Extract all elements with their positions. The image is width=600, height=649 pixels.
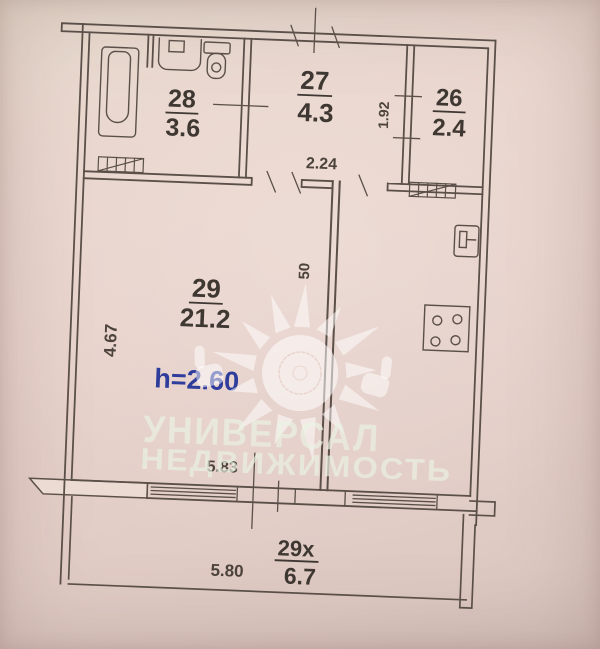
sun-disc — [261, 334, 340, 413]
washbasin-icon — [158, 38, 201, 71]
outer-wall-left — [60, 24, 89, 584]
toilet-tank-icon — [204, 42, 230, 54]
floor-plan-photo: 28 3.6 27 4.3 26 2.4 29 21.2 h=2.60 29x … — [0, 0, 600, 649]
dim-2-24: 2.24 — [306, 155, 338, 173]
room-28-area: 3.6 — [165, 113, 201, 142]
window-1 — [151, 487, 235, 498]
stove-icon — [423, 305, 470, 352]
door-dash-26 — [394, 96, 422, 139]
bathtub-inner — [106, 51, 131, 123]
wall-28-27 — [239, 39, 252, 178]
room-29-number: 29 — [191, 273, 221, 304]
window-2 — [353, 495, 435, 505]
balcony-left-wall — [69, 497, 72, 579]
room-29x-area: 6.7 — [283, 563, 316, 590]
floor-plan-svg: 28 3.6 27 4.3 26 2.4 29 21.2 h=2.60 29x … — [0, 0, 600, 649]
toilet-drain — [212, 63, 221, 72]
bottom-dim-tick-short — [278, 481, 279, 511]
outer-wall-top — [62, 23, 496, 48]
bottom-openings — [147, 483, 437, 510]
room-26-number: 26 — [435, 84, 463, 112]
top-wall-tick — [314, 8, 316, 52]
watermark-thumb-right-icon — [359, 350, 397, 399]
kitchen-fixtures — [423, 224, 479, 352]
dim-4-67: 4.67 — [101, 324, 121, 358]
kitchen-sink-icon — [454, 225, 479, 257]
dim-1-92: 1.92 — [375, 101, 392, 129]
balcony-floor-line — [68, 584, 466, 600]
room-26-underline — [434, 111, 465, 112]
room-29x-number: 29x — [277, 535, 315, 561]
room-27-area: 4.3 — [297, 97, 334, 128]
room-28-number: 28 — [168, 85, 197, 114]
wall-27-26 — [402, 45, 415, 184]
balcony-right-wall — [460, 515, 476, 608]
outer-walls — [39, 23, 495, 600]
bathroom-fixtures — [98, 36, 230, 141]
room-27-number: 27 — [300, 65, 330, 96]
washbasin-tap — [169, 41, 184, 53]
outer-wall-right — [469, 40, 495, 525]
door-dash-28 — [214, 104, 268, 106]
toilet-bowl-icon — [207, 53, 226, 79]
dim-50: 50 — [296, 262, 314, 279]
dim-5-80: 5.80 — [210, 561, 244, 581]
ceiling-height-label: h=2.60 — [154, 363, 240, 396]
room-26-area: 2.4 — [432, 114, 467, 142]
radiator-icon — [98, 157, 144, 173]
wall-cross-arm — [470, 501, 496, 516]
watermark-line2: НЕДВИЖИМОСТЬ — [140, 443, 453, 488]
hall-dim-ticks — [266, 172, 368, 196]
wall-stub-bath — [147, 35, 153, 67]
bathtub-icon — [98, 47, 139, 137]
room-29-area: 21.2 — [179, 302, 231, 334]
